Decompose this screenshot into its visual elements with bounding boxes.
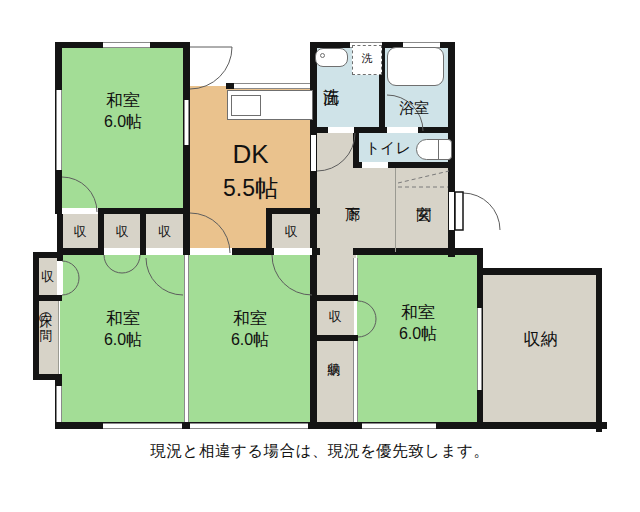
room-name: 収	[158, 224, 171, 239]
room-name: 浴室	[399, 99, 429, 116]
window	[190, 423, 308, 429]
label-washitsu-bottom-center: 和室 6.0帖	[188, 308, 312, 351]
label-bath: 浴室	[382, 99, 446, 118]
room-name: 収	[285, 224, 298, 239]
room-name: トイレ	[365, 139, 411, 156]
label-entrance: 玄関	[414, 194, 433, 198]
window	[103, 423, 182, 429]
room-size: 6.0帖	[104, 331, 142, 348]
toilet-fixture	[416, 139, 452, 160]
room-name: 和室	[401, 303, 435, 322]
toilet-tank-line	[438, 140, 439, 159]
label-washitsu-bottom-left: 和室 6.0帖	[60, 308, 186, 351]
wall	[479, 268, 602, 275]
door-opening	[274, 248, 312, 255]
room-name: 収	[116, 224, 129, 239]
entrance-door-leaf	[455, 192, 463, 230]
sliding-door[interactable]	[353, 341, 358, 422]
caption-text: 現況と相違する場合は、現況を優先致します。	[151, 442, 490, 459]
washbasin	[315, 48, 348, 67]
wall	[314, 335, 358, 341]
room-hallway	[316, 131, 356, 253]
wall	[353, 295, 358, 301]
door-opening	[311, 135, 316, 171]
label-tokonoma: 床の間	[37, 303, 53, 321]
disclaimer-caption: 現況と相違する場合は、現況を優先致します。	[10, 441, 630, 460]
label-hallway: 廊下	[343, 194, 362, 198]
room-entrance	[356, 166, 452, 253]
label-laundry: 洗	[352, 52, 382, 66]
room-name: 収	[41, 269, 54, 284]
wall	[226, 83, 234, 89]
room-name: 和室	[106, 309, 140, 328]
door-opening	[190, 248, 232, 255]
label-washitsu-top-left: 和室 6.0帖	[60, 90, 186, 133]
tokonoma-edge	[58, 301, 59, 374]
label-closet-2: 収	[102, 224, 142, 240]
window	[56, 386, 62, 422]
label-closet-1: 収	[60, 224, 100, 240]
room-name: 廊下	[345, 194, 362, 198]
room-name: 玄関	[416, 194, 433, 198]
room-name: DK	[232, 139, 268, 169]
room-size: 6.0帖	[104, 113, 142, 130]
wall	[353, 248, 483, 255]
label-dk: DK 5.5帖	[190, 138, 311, 203]
room-name: 和室	[106, 91, 140, 110]
door-opening	[104, 248, 140, 255]
label-washitsu-bottom-right: 和室 6.0帖	[357, 302, 479, 345]
room-name: 洗	[362, 52, 373, 64]
label-closet-center: 収	[316, 309, 354, 325]
kitchen-sink	[231, 95, 261, 116]
floor-plan: 和室 6.0帖 DK 5.5帖 洗面 洗 浴室 トイレ 廊下 玄関 収 収 収 …	[0, 0, 640, 512]
label-closet-4: 収	[270, 224, 312, 240]
label-storage-large: 収納	[483, 329, 598, 350]
wall	[57, 252, 63, 261]
room-size: 6.0帖	[399, 325, 437, 342]
window	[234, 83, 310, 89]
sliding-door[interactable]	[353, 258, 358, 295]
bathtub	[387, 47, 444, 86]
room-storage-center	[316, 338, 354, 424]
room-name: 床の間	[38, 303, 53, 321]
label-toilet: トイレ	[357, 139, 419, 158]
room-name: 収納	[326, 352, 341, 354]
label-senmen: 洗面	[321, 76, 341, 80]
room-size: 5.5帖	[223, 175, 278, 201]
window	[103, 42, 150, 48]
window	[362, 423, 436, 429]
door-opening	[362, 162, 388, 168]
door-opening	[387, 127, 418, 133]
room-hallway-extension	[316, 252, 356, 298]
entrance-hall-divider	[395, 168, 396, 252]
room-name: 洗面	[323, 76, 340, 80]
label-closet-3: 収	[144, 224, 185, 240]
wall	[314, 295, 358, 301]
room-name: 収納	[524, 330, 558, 349]
washbasin-faucet	[320, 53, 325, 58]
door-opening	[62, 208, 98, 214]
room-name: 和室	[233, 309, 267, 328]
label-storage-center: 収納	[325, 352, 341, 354]
door-opening	[328, 127, 354, 133]
label-closet-left: 収	[36, 269, 59, 285]
room-name: 収	[74, 224, 87, 239]
room-name: 収	[329, 309, 342, 324]
room-size: 6.0帖	[231, 331, 269, 348]
door-opening	[449, 192, 454, 230]
door-opening	[146, 248, 183, 255]
